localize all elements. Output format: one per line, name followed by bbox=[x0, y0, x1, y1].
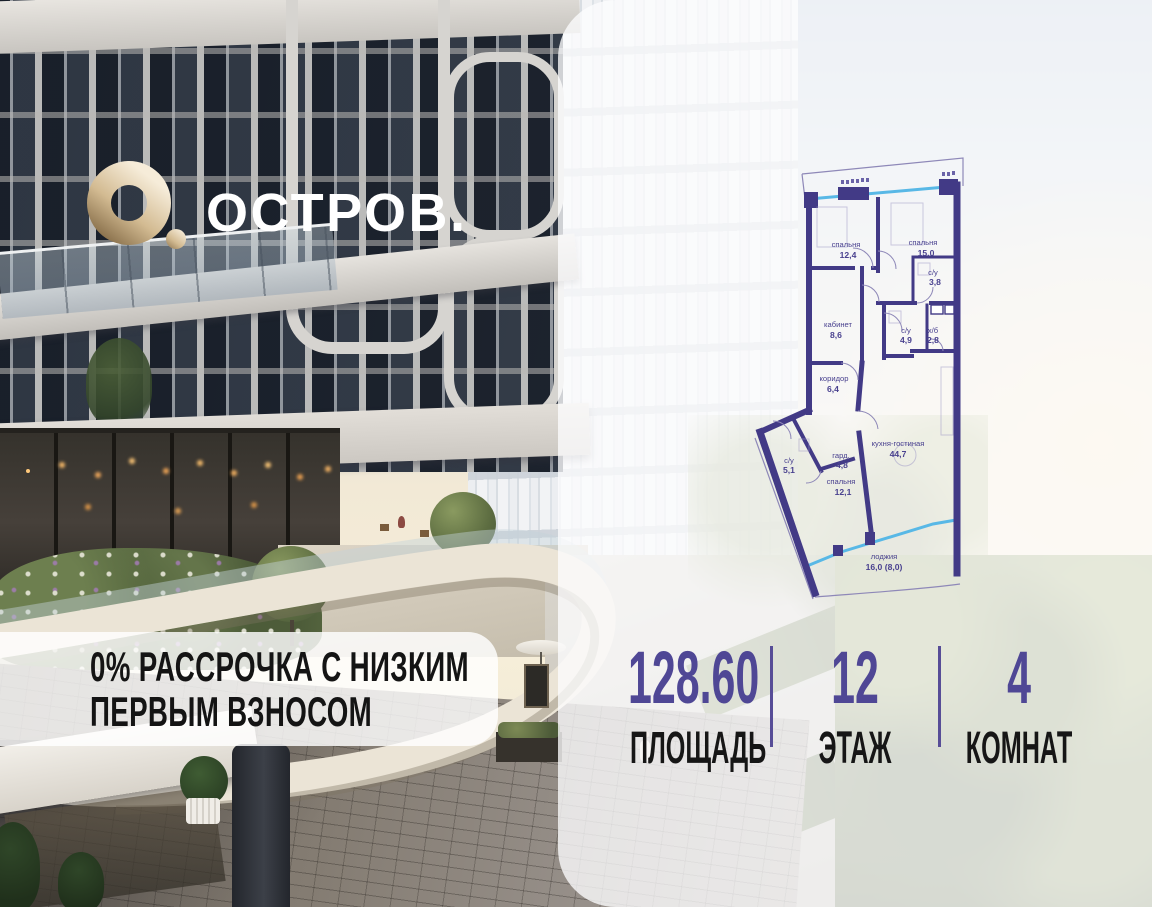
room-label: спальня bbox=[832, 240, 861, 249]
stat-rooms: 4 КОМНАТ bbox=[919, 641, 1119, 770]
room-area: 5,1 bbox=[783, 465, 795, 475]
room-label: х/б bbox=[928, 326, 939, 335]
room-label: с/у bbox=[784, 456, 794, 465]
room-label: спальня bbox=[827, 477, 856, 486]
floor-plan-outline bbox=[755, 158, 963, 599]
room-label: кухня-гостиная bbox=[872, 439, 925, 448]
room-label: кабинет bbox=[824, 320, 852, 329]
photo-conifer bbox=[58, 852, 104, 907]
stat-floor-value: 12 bbox=[797, 641, 913, 715]
room-area: 12,1 bbox=[835, 487, 852, 497]
room-area: 3,8 bbox=[929, 277, 941, 287]
room-label: с/у bbox=[901, 326, 911, 335]
room-area: 16,0 (8,0) bbox=[866, 562, 903, 572]
brand-logo-ring-icon bbox=[82, 155, 194, 257]
promo-banner-text: 0% РАССРОЧКА С НИЗКИМ ПЕРВЫМ ВЗНОСОМ bbox=[90, 644, 664, 734]
stat-area-value: 128.60 bbox=[628, 641, 744, 715]
promo-card: спальня 12,4 спальня 15,0 с/у 3,8 кабине… bbox=[0, 0, 1152, 907]
stat-area-label: ПЛОЩАДЬ bbox=[630, 725, 742, 770]
room-area: 44,7 bbox=[890, 449, 907, 459]
promo-line-1: 0% РАССРОЧКА С НИЗКИМ bbox=[90, 644, 469, 689]
room-label: спальня bbox=[909, 238, 938, 247]
floor-plan: спальня 12,4 спальня 15,0 с/у 3,8 кабине… bbox=[745, 153, 975, 603]
brand-name: ОСТРОВ. bbox=[206, 182, 467, 244]
room-label: лоджия bbox=[871, 552, 897, 561]
room-area: 6,4 bbox=[827, 384, 839, 394]
room-area: 4,9 bbox=[900, 335, 912, 345]
plan-window-line bbox=[809, 186, 957, 199]
photo-planter bbox=[186, 798, 220, 824]
promo-line-2: ПЕРВЫМ ВЗНОСОМ bbox=[90, 689, 469, 734]
promo-banner: 0% РАССРОЧКА С НИЗКИМ ПЕРВЫМ ВЗНОСОМ bbox=[0, 632, 498, 746]
room-area: 8,6 bbox=[830, 330, 842, 340]
room-label: коридор bbox=[820, 374, 849, 383]
room-area: 4,8 bbox=[836, 460, 848, 470]
photo-column bbox=[232, 744, 290, 907]
stat-floor-label: ЭТАЖ bbox=[799, 725, 911, 770]
stat-rooms-value: 4 bbox=[961, 641, 1077, 715]
room-area: 15,0 bbox=[918, 248, 935, 258]
room-label: с/у bbox=[928, 268, 938, 277]
room-area: 12,4 bbox=[840, 250, 857, 260]
room-label: гард. bbox=[832, 451, 849, 460]
stat-rooms-label: КОМНАТ bbox=[963, 725, 1075, 770]
room-area: 2,8 bbox=[927, 335, 939, 345]
